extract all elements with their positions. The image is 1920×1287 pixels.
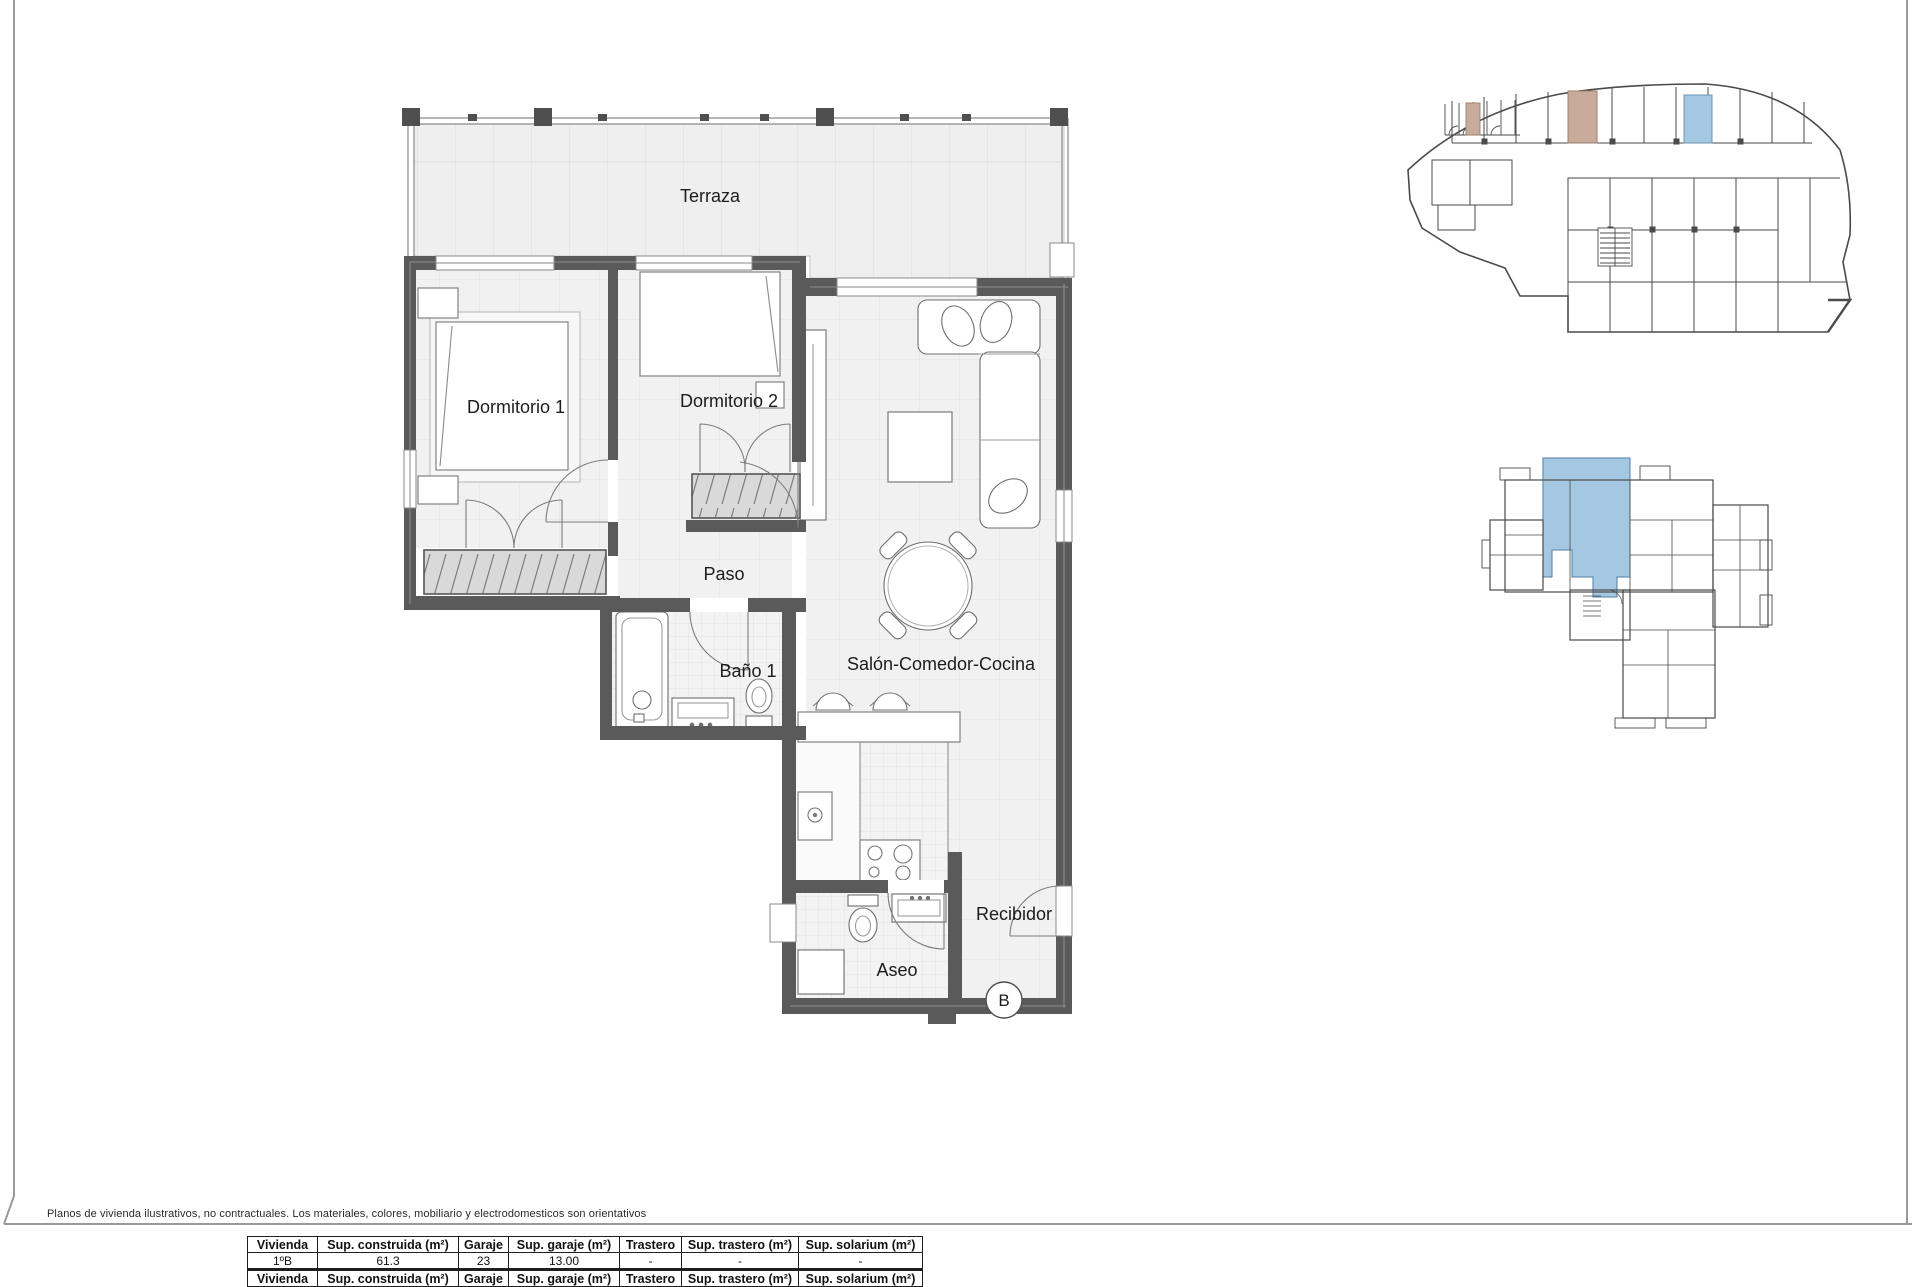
header-sup-garaje: Sup. garaje (m²) [509,1237,620,1253]
header-trastero: Trastero [620,1237,682,1253]
pillar-aseo-left [770,904,796,942]
garage-key-plan [1408,84,1850,332]
disclaimer-text: Planos de vivienda ilustrativos, no cont… [47,1208,646,1220]
main-floor-plan: Terraza Dormitorio 1 Dormitorio 2 Paso B… [402,108,1074,1024]
toilet-icon [746,679,772,728]
room-label-dormitorio1: Dormitorio 1 [467,397,565,417]
cell-trastero: - [620,1253,682,1270]
summary-table: Vivienda Sup. construida (m²) Garaje Sup… [247,1236,923,1287]
highlighted-storage-small [1466,103,1480,135]
cell-sup-construida: 61.3 [318,1253,459,1270]
closet-dorm2 [692,474,800,518]
floor-plan-sheet: Terraza Dormitorio 1 Dormitorio 2 Paso B… [0,0,1920,1280]
header-garaje: Garaje [459,1237,509,1253]
table-header-row: Vivienda Sup. construida (m²) Garaje Sup… [248,1237,923,1253]
closet-dorm1 [424,550,606,594]
room-label-dormitorio2: Dormitorio 2 [680,391,778,411]
room-label-bano1: Baño 1 [719,661,776,681]
cell-sup-trastero: - [682,1253,799,1270]
room-label-salon: Salón-Comedor-Cocina [847,654,1036,674]
room-label-aseo: Aseo [876,960,917,980]
bathtub-icon [616,612,668,732]
room-label-terraza: Terraza [680,186,741,206]
bed2 [640,272,780,376]
table-data-row: 1ºB 61.3 23 13.00 - - - [248,1253,923,1270]
vanity-sink-icon [672,698,734,730]
coffee-table [888,412,952,482]
railing-posts [402,108,1068,126]
room-label-recibidor: Recibidor [976,904,1052,924]
dining-table [877,529,980,641]
window-salon [837,278,977,296]
kitchen-bar-counter [798,712,960,742]
cell-sup-solarium: - [799,1253,923,1270]
header-sup-trastero: Sup. trastero (m²) [682,1237,799,1253]
header-sup-solarium: Sup. solarium (m²) [799,1237,923,1253]
unit-marker: B [986,982,1022,1018]
pillar-top-right [1050,243,1074,277]
cell-sup-garaje: 13.00 [509,1253,620,1270]
entry-opening [1056,886,1072,936]
window-left [404,450,416,508]
aseo-sink-icon [892,894,946,922]
cell-garaje: 23 [459,1253,509,1270]
window-right-salon [1056,490,1072,542]
garage-stairs [1598,228,1632,266]
room-label-paso: Paso [703,564,744,584]
washer-icon [798,950,844,994]
dormitorio1-furniture [418,288,580,504]
highlighted-garage-space [1684,95,1712,143]
svg-text:B: B [998,991,1009,1010]
floor-key-plan [1482,458,1772,728]
table-header-row-clipped: Vivienda Sup. construida (m²) Garaje Sup… [248,1270,923,1287]
kitchen-sink [798,792,832,840]
window-dorm1 [436,256,554,270]
highlighted-unit [1543,458,1630,597]
aseo-toilet-icon [848,895,878,942]
header-sup-construida: Sup. construida (m²) [318,1237,459,1253]
highlighted-storage-large [1568,91,1597,143]
bed1 [436,322,568,470]
cell-vivienda: 1ºB [248,1253,318,1270]
nightstand1 [418,288,458,318]
nightstand1b [418,476,458,504]
window-dorm2 [636,256,752,270]
header-vivienda: Vivienda [248,1237,318,1253]
stove-icon [860,840,920,882]
